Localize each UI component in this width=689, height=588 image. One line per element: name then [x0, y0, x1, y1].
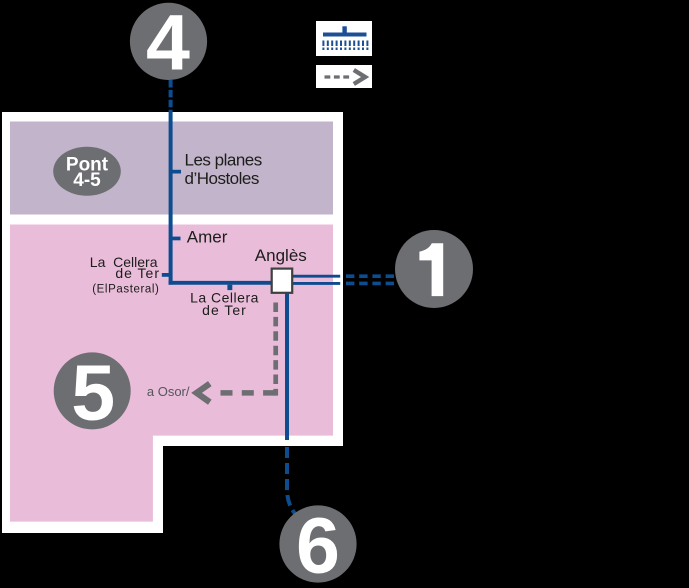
svg-text:de Ter: de Ter — [202, 302, 247, 318]
svg-text:Amer: Amer — [187, 227, 228, 246]
svg-text:4-5: 4-5 — [73, 170, 101, 191]
svg-text:4: 4 — [146, 0, 190, 87]
svg-text:de Ter: de Ter — [115, 265, 160, 281]
svg-text:5: 5 — [71, 348, 115, 437]
svg-text:Les planes: Les planes — [185, 151, 262, 170]
svg-text:Anglès: Anglès — [255, 246, 307, 265]
svg-text:6: 6 — [296, 501, 340, 588]
svg-text:d’Hostoles: d’Hostoles — [185, 169, 259, 188]
svg-text:a Osor/: a Osor/ — [147, 384, 190, 399]
svg-text:(ElPasteral): (ElPasteral) — [92, 284, 159, 296]
